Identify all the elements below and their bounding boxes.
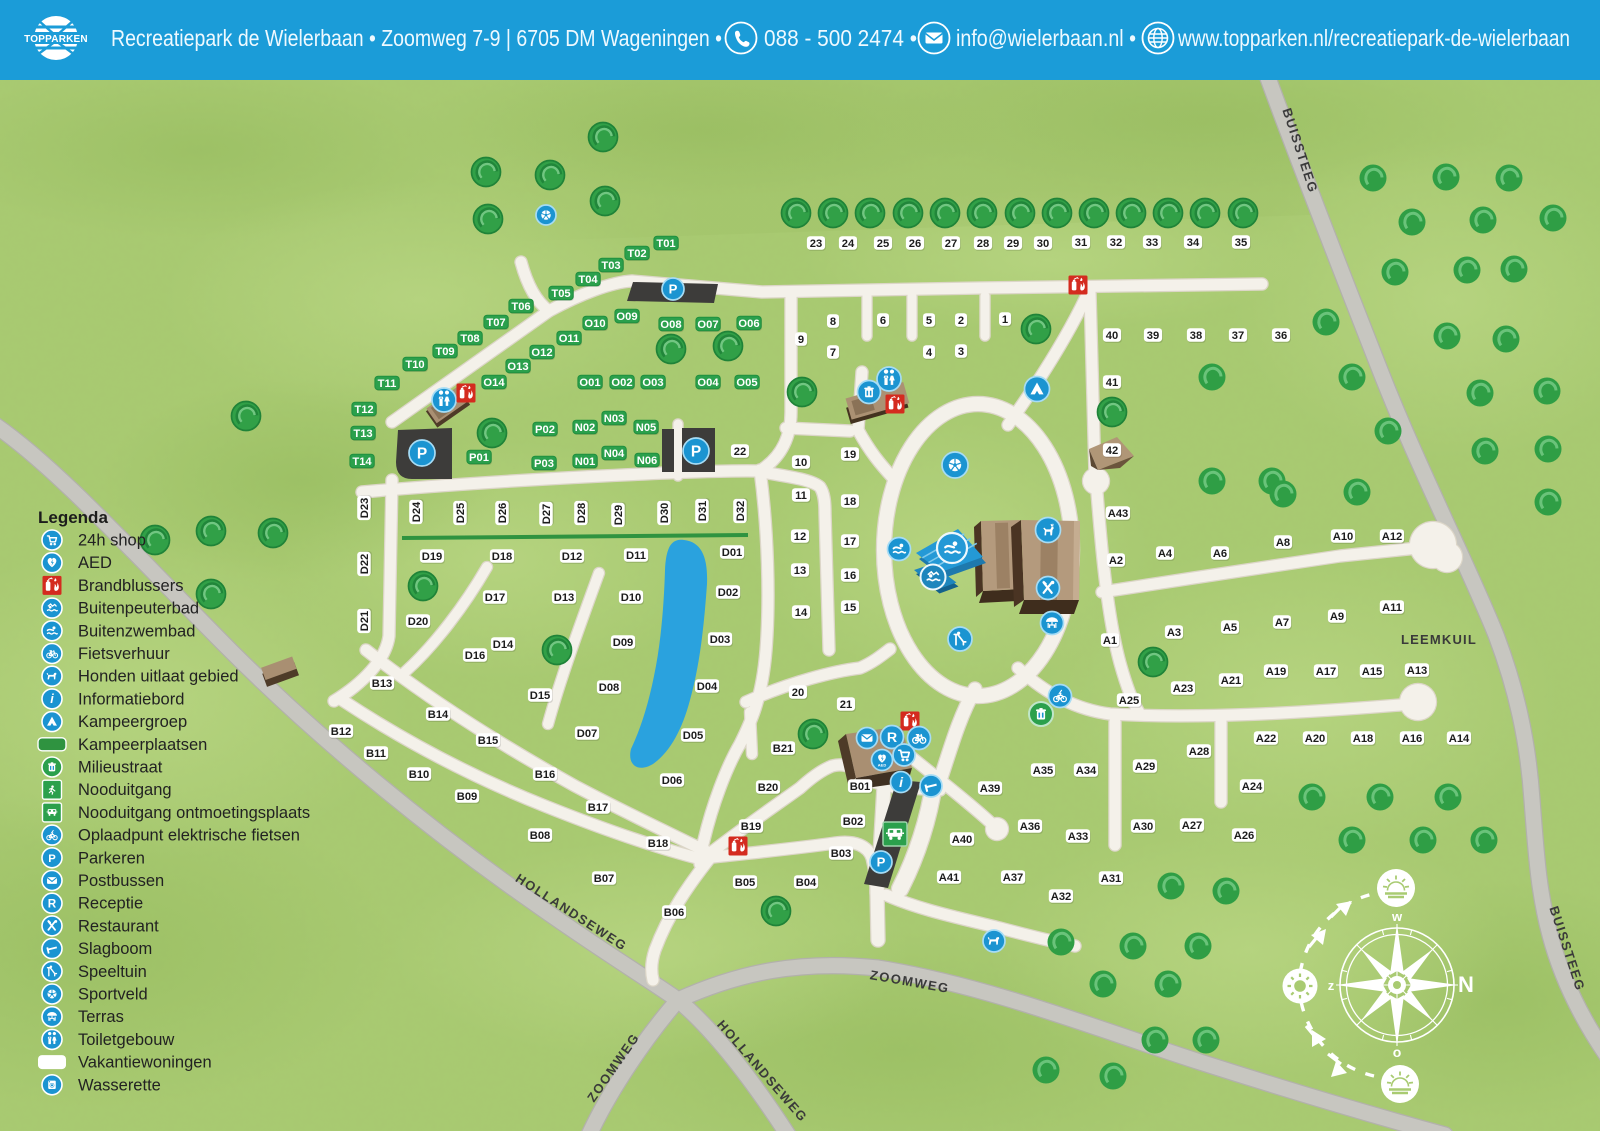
svg-text:A5: A5 (1223, 622, 1237, 634)
svg-text:25: 25 (877, 238, 889, 250)
svg-text:A14: A14 (1449, 733, 1470, 745)
svg-text:T12: T12 (354, 404, 373, 416)
svg-text:A26: A26 (1234, 830, 1255, 842)
svg-text:O07: O07 (697, 319, 718, 331)
svg-text:O05: O05 (736, 377, 757, 389)
svg-text:P01: P01 (469, 452, 489, 464)
svg-text:7: 7 (830, 347, 836, 359)
svg-text:O11: O11 (559, 333, 580, 345)
svg-text:17: 17 (844, 536, 856, 548)
svg-text:N02: N02 (575, 422, 596, 434)
svg-text:A21: A21 (1221, 675, 1242, 687)
svg-text:39: 39 (1147, 330, 1159, 342)
svg-text:o: o (1393, 1044, 1402, 1060)
svg-text:24h shop: 24h shop (78, 532, 146, 550)
svg-text:D01: D01 (722, 547, 743, 559)
svg-text:A3: A3 (1167, 627, 1181, 639)
svg-text:A23: A23 (1173, 683, 1194, 695)
svg-text:41: 41 (1106, 377, 1118, 389)
svg-text:A25: A25 (1119, 695, 1140, 707)
svg-text:T14: T14 (352, 456, 372, 468)
svg-text:B06: B06 (664, 907, 685, 919)
svg-text:13: 13 (794, 565, 806, 577)
svg-text:A4: A4 (1158, 548, 1173, 560)
svg-text:D04: D04 (697, 681, 718, 693)
svg-text:O06: O06 (738, 318, 759, 330)
svg-text:Milieustraat: Milieustraat (78, 759, 163, 777)
svg-text:z: z (1328, 978, 1335, 993)
svg-text:www.topparken.nl/recreatiepark: www.topparken.nl/recreatiepark-de-wieler… (1177, 25, 1570, 51)
svg-text:18: 18 (844, 496, 856, 508)
svg-text:B07: B07 (594, 873, 615, 885)
svg-text:A8: A8 (1276, 537, 1290, 549)
svg-text:Buitenzwembad: Buitenzwembad (78, 622, 195, 640)
svg-text:4: 4 (926, 347, 933, 359)
svg-text:Parkeren: Parkeren (78, 849, 145, 867)
svg-text:A29: A29 (1135, 761, 1156, 773)
svg-text:B03: B03 (831, 848, 852, 860)
svg-text:B15: B15 (478, 735, 499, 747)
svg-text:B05: B05 (735, 877, 756, 889)
svg-text:O09: O09 (616, 311, 637, 323)
svg-text:D03: D03 (710, 634, 731, 646)
svg-text:Postbussen: Postbussen (78, 872, 164, 890)
svg-text:Honden uitlaat gebied: Honden uitlaat gebied (78, 668, 239, 686)
svg-text:D12: D12 (562, 551, 583, 563)
svg-text:40: 40 (1106, 330, 1118, 342)
svg-text:37: 37 (1232, 330, 1244, 342)
svg-text:A17: A17 (1316, 666, 1337, 678)
svg-text:34: 34 (1187, 237, 1200, 249)
svg-text:B17: B17 (588, 802, 609, 814)
svg-text:N: N (1458, 972, 1474, 997)
svg-text:B02: B02 (843, 816, 864, 828)
svg-text:O10: O10 (584, 318, 605, 330)
svg-text:31: 31 (1075, 237, 1087, 249)
svg-text:D13: D13 (554, 592, 575, 604)
svg-text:15: 15 (844, 602, 856, 614)
svg-text:Slagboom: Slagboom (78, 940, 152, 958)
svg-text:B01: B01 (850, 781, 871, 793)
svg-text:D27: D27 (541, 504, 553, 525)
svg-text:26: 26 (909, 238, 921, 250)
svg-text:Vakantiewoningen: Vakantiewoningen (78, 1054, 212, 1072)
svg-text:A30: A30 (1133, 821, 1154, 833)
svg-text:N04: N04 (604, 448, 625, 460)
svg-text:D28: D28 (576, 503, 588, 524)
svg-text:D06: D06 (662, 775, 683, 787)
svg-text:O12: O12 (531, 347, 552, 359)
svg-text:A19: A19 (1266, 666, 1287, 678)
svg-text:D31: D31 (697, 501, 709, 522)
svg-text:N06: N06 (637, 455, 658, 467)
svg-text:28: 28 (977, 238, 989, 250)
svg-text:Nooduitgang ontmoetingsplaats: Nooduitgang ontmoetingsplaats (78, 804, 310, 822)
svg-text:LEEMKUIL: LEEMKUIL (1401, 632, 1477, 647)
svg-text:Brandblussers: Brandblussers (78, 577, 183, 595)
svg-text:A40: A40 (952, 834, 973, 846)
svg-text:D25: D25 (455, 503, 467, 524)
svg-text:36: 36 (1275, 330, 1287, 342)
svg-text:B04: B04 (796, 877, 817, 889)
svg-text:A32: A32 (1051, 891, 1072, 903)
svg-text:D18: D18 (492, 551, 513, 563)
svg-text:D22: D22 (359, 554, 371, 575)
svg-text:T10: T10 (405, 359, 424, 371)
svg-text:D21: D21 (359, 611, 371, 632)
svg-text:38: 38 (1190, 330, 1202, 342)
svg-text:P03: P03 (534, 458, 554, 470)
svg-text:AED: AED (878, 763, 887, 768)
svg-text:Fietsverhuur: Fietsverhuur (78, 645, 170, 663)
svg-text:B09: B09 (457, 791, 478, 803)
svg-text:N01: N01 (575, 456, 596, 468)
svg-text:A43: A43 (1108, 508, 1129, 520)
svg-text:B18: B18 (648, 838, 669, 850)
svg-text:A33: A33 (1068, 831, 1089, 843)
svg-text:D19: D19 (422, 551, 443, 563)
svg-text:T06: T06 (511, 301, 530, 313)
svg-text:B16: B16 (535, 769, 556, 781)
svg-text:A10: A10 (1333, 531, 1354, 543)
svg-text:O13: O13 (507, 361, 528, 373)
svg-text:P02: P02 (535, 424, 555, 436)
svg-text:D07: D07 (577, 728, 598, 740)
svg-text:A2: A2 (1109, 555, 1123, 567)
svg-text:D10: D10 (621, 592, 642, 604)
svg-text:21: 21 (840, 699, 852, 711)
svg-text:D32: D32 (735, 501, 747, 522)
svg-text:D05: D05 (683, 730, 704, 742)
svg-text:O02: O02 (611, 377, 632, 389)
svg-text:O08: O08 (660, 319, 681, 331)
svg-text:AED: AED (78, 554, 112, 572)
svg-text:A27: A27 (1182, 820, 1203, 832)
svg-text:A11: A11 (1382, 602, 1402, 614)
svg-text:D26: D26 (497, 503, 509, 524)
svg-text:D20: D20 (408, 616, 429, 628)
svg-text:A16: A16 (1402, 733, 1423, 745)
svg-text:A37: A37 (1003, 872, 1024, 884)
svg-text:T08: T08 (460, 333, 479, 345)
svg-text:Sportveld: Sportveld (78, 986, 148, 1004)
svg-text:B21: B21 (773, 743, 794, 755)
svg-text:35: 35 (1235, 237, 1247, 249)
svg-text:A18: A18 (1353, 733, 1374, 745)
svg-text:D08: D08 (599, 682, 620, 694)
svg-text:A34: A34 (1076, 765, 1097, 777)
svg-text:1: 1 (1002, 314, 1008, 326)
svg-text:D16: D16 (465, 650, 486, 662)
svg-text:O14: O14 (483, 377, 505, 389)
svg-text:A15: A15 (1362, 666, 1383, 678)
svg-text:30: 30 (1037, 238, 1049, 250)
svg-text:42: 42 (1106, 445, 1118, 457)
svg-text:Nooduitgang: Nooduitgang (78, 781, 172, 799)
svg-text:T13: T13 (353, 428, 372, 440)
svg-text:Toiletgebouw: Toiletgebouw (78, 1031, 174, 1049)
svg-text:A36: A36 (1020, 821, 1041, 833)
svg-text:T09: T09 (435, 346, 454, 358)
svg-text:T04: T04 (578, 274, 598, 286)
svg-text:B20: B20 (758, 782, 779, 794)
svg-text:B14: B14 (428, 709, 449, 721)
svg-text:11: 11 (795, 490, 807, 502)
svg-text:T07: T07 (486, 317, 505, 329)
svg-text:9: 9 (798, 334, 804, 346)
svg-text:A39: A39 (980, 783, 1001, 795)
svg-text:A22: A22 (1256, 733, 1277, 745)
svg-text:T02: T02 (627, 248, 646, 260)
svg-text:Restaurant: Restaurant (78, 917, 159, 935)
svg-text:Receptie: Receptie (78, 895, 143, 913)
svg-text:A6: A6 (1213, 548, 1227, 560)
svg-text:D23: D23 (359, 498, 371, 519)
svg-text:14: 14 (795, 607, 808, 619)
svg-text:w: w (1391, 909, 1403, 924)
svg-text:27: 27 (945, 238, 957, 250)
svg-text:O04: O04 (697, 377, 719, 389)
svg-text:Kampeerplaatsen: Kampeerplaatsen (78, 736, 207, 754)
svg-text:23: 23 (810, 238, 822, 250)
svg-text:T05: T05 (551, 288, 570, 300)
svg-text:29: 29 (1007, 238, 1019, 250)
svg-text:33: 33 (1146, 237, 1158, 249)
svg-text:B12: B12 (331, 726, 352, 738)
svg-text:D24: D24 (411, 501, 423, 522)
svg-text:D09: D09 (613, 637, 634, 649)
svg-text:10: 10 (795, 457, 807, 469)
svg-text:088 - 500 2474 •: 088 - 500 2474 • (764, 25, 917, 51)
svg-text:Legenda: Legenda (38, 508, 108, 527)
svg-text:TOPPARKEN: TOPPARKEN (24, 34, 88, 45)
svg-text:Wasserette: Wasserette (78, 1076, 161, 1094)
svg-text:8: 8 (830, 316, 836, 328)
svg-text:D15: D15 (530, 690, 551, 702)
svg-text:Oplaadpunt elektrische fietsen: Oplaadpunt elektrische fietsen (78, 827, 300, 845)
svg-text:B08: B08 (530, 830, 551, 842)
svg-text:D30: D30 (659, 503, 671, 524)
svg-text:A35: A35 (1033, 765, 1054, 777)
svg-text:O03: O03 (642, 377, 663, 389)
svg-text:Recreatiepark de Wielerbaan •: Recreatiepark de Wielerbaan • Zoomweg 7-… (111, 25, 722, 51)
svg-text:Kampeergroep: Kampeergroep (78, 713, 187, 731)
svg-text:N03: N03 (604, 413, 625, 425)
svg-text:O01: O01 (579, 377, 600, 389)
svg-text:2: 2 (958, 315, 964, 327)
svg-text:Buitenpeuterbad: Buitenpeuterbad (78, 600, 199, 618)
svg-text:T01: T01 (656, 238, 675, 250)
svg-text:19: 19 (844, 449, 856, 461)
svg-text:A7: A7 (1275, 617, 1289, 629)
svg-text:20: 20 (792, 687, 804, 699)
svg-text:3: 3 (958, 346, 964, 358)
svg-text:Speeltuin: Speeltuin (78, 963, 147, 981)
svg-text:D02: D02 (718, 587, 739, 599)
svg-text:D11: D11 (626, 550, 646, 562)
svg-text:info@wielerbaan.nl •: info@wielerbaan.nl • (956, 25, 1136, 51)
svg-text:T11: T11 (378, 378, 397, 390)
svg-text:12: 12 (794, 531, 806, 543)
svg-text:32: 32 (1110, 237, 1122, 249)
svg-text:A20: A20 (1305, 733, 1326, 745)
svg-text:A12: A12 (1382, 531, 1403, 543)
svg-text:Terras: Terras (78, 1008, 124, 1026)
svg-text:B19: B19 (741, 821, 762, 833)
svg-text:24: 24 (842, 238, 855, 250)
svg-text:A28: A28 (1189, 746, 1210, 758)
svg-text:D17: D17 (485, 592, 506, 604)
svg-text:T03: T03 (601, 260, 620, 272)
svg-text:B13: B13 (372, 678, 393, 690)
svg-text:5: 5 (926, 315, 932, 327)
svg-text:A9: A9 (1330, 611, 1344, 623)
svg-text:N05: N05 (636, 422, 657, 434)
svg-text:B11: B11 (366, 748, 386, 760)
svg-text:A13: A13 (1407, 665, 1428, 677)
svg-text:A24: A24 (1242, 781, 1263, 793)
svg-text:D14: D14 (493, 639, 514, 651)
svg-text:16: 16 (844, 570, 856, 582)
svg-text:A41: A41 (939, 872, 960, 884)
svg-text:A1: A1 (1103, 635, 1117, 647)
svg-text:B10: B10 (409, 769, 430, 781)
svg-text:22: 22 (734, 446, 746, 458)
svg-text:D29: D29 (613, 505, 625, 526)
svg-text:A31: A31 (1101, 873, 1122, 885)
svg-text:6: 6 (880, 315, 886, 327)
svg-text:Informatiebord: Informatiebord (78, 690, 184, 708)
